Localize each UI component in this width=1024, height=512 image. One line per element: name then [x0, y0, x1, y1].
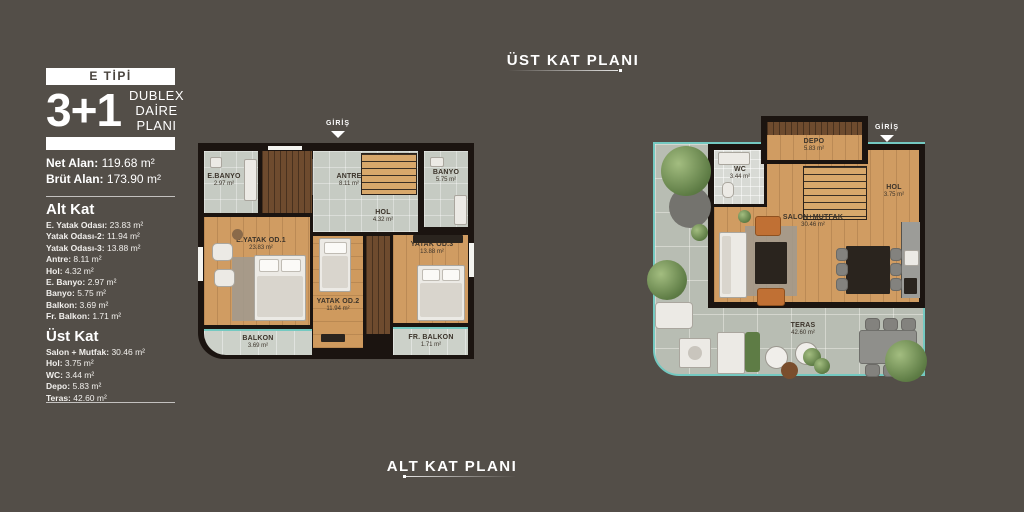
- brut-alan-value: 173.90 m²: [107, 172, 161, 186]
- armchair: [757, 288, 785, 306]
- giris-label-alt: GİRİŞ: [312, 120, 364, 127]
- master-bed: [254, 255, 306, 321]
- armchair: [755, 216, 781, 236]
- title-underline: [406, 476, 516, 477]
- armchair: [212, 243, 233, 261]
- kitchen-counter: [901, 222, 920, 298]
- sofa: [719, 232, 747, 298]
- ust-kat-heading: Üst Kat: [46, 328, 99, 345]
- round-table: [781, 362, 798, 379]
- brochure-page: E TİPİ 3+1 DUBLEX DAİRE PLANI Net Alan: …: [0, 0, 1024, 512]
- room-depo: DEPO 5.83 m²: [783, 138, 845, 153]
- type-badge: E TİPİ: [46, 68, 175, 85]
- depo-block: DEPO 5.83 m²: [761, 116, 868, 164]
- chair: [836, 248, 848, 261]
- chair: [890, 248, 902, 261]
- list-item: Banyo: 5.75 m²: [46, 288, 186, 299]
- chair: [890, 278, 902, 291]
- coffee-table: [755, 242, 787, 284]
- list-item: Fr. Balkon: 1.71 m²: [46, 311, 186, 322]
- bush: [814, 358, 830, 374]
- alt-kat-heading: Alt Kat: [46, 201, 94, 218]
- net-alan: Net Alan: 119.68 m²: [46, 156, 155, 170]
- dresser: [413, 235, 463, 243]
- net-alan-label: Net Alan:: [46, 156, 98, 170]
- bush: [691, 224, 708, 241]
- bathtub: [244, 159, 257, 201]
- floor-plan-ust-kat: WC 3.44 m² HOL 3.75 m² SALON+MUTFAK 30.4…: [653, 116, 925, 374]
- tree: [647, 260, 687, 300]
- giris-label-ust: GİRİŞ: [861, 124, 913, 131]
- divider-bottom: [46, 402, 175, 403]
- unit-count: 3+1: [46, 89, 121, 131]
- room-fr-balkon: FR. BALKON 1.71 m²: [393, 327, 468, 355]
- side-table: [232, 229, 243, 240]
- room-e-banyo: E.BANYO 2.97 m²: [204, 151, 258, 213]
- planter-box: [745, 332, 760, 372]
- armchair: [214, 269, 235, 287]
- list-item: Yatak Odası-3: 13.88 m²: [46, 243, 186, 254]
- list-item: WC: 3.44 m²: [46, 370, 186, 381]
- sink: [430, 157, 444, 167]
- divider-top: [46, 196, 175, 197]
- list-item: Balkon: 3.69 m²: [46, 300, 186, 311]
- window: [198, 247, 203, 281]
- room-banyo: BANYO 5.75 m²: [424, 151, 468, 227]
- list-item: Antre: 8.11 m²: [46, 254, 186, 265]
- dining-table: [846, 246, 890, 294]
- wardrobe-area: [262, 151, 312, 213]
- alt-kat-plani-title: ALT KAT PLANI: [342, 458, 562, 475]
- kitchen-sink: [904, 250, 919, 266]
- ust-kat-list: Salon + Mutfak: 30.46 m² Hol: 3.75 m² WC…: [46, 347, 186, 404]
- unit-header: 3+1 DUBLEX DAİRE PLANI: [46, 88, 186, 132]
- stairs: [361, 153, 417, 195]
- chair: [836, 278, 848, 291]
- white-band: [46, 137, 175, 150]
- toilet: [722, 182, 734, 198]
- list-item: E. Banyo: 2.97 m²: [46, 277, 186, 288]
- chair: [890, 263, 902, 276]
- ust-kat-plani-title: ÜST KAT PLANI: [463, 52, 683, 69]
- entrance-arrow-icon: [331, 131, 345, 138]
- entrance-arrow-icon: [880, 135, 894, 142]
- wardrobe: [767, 122, 862, 135]
- outdoor-table: [679, 338, 711, 368]
- list-item: E. Yatak Odası: 23.83 m²: [46, 220, 186, 231]
- closet: [366, 236, 390, 334]
- brut-alan-label: Brüt Alan:: [46, 172, 104, 186]
- list-item: Hol: 4.32 m²: [46, 266, 186, 277]
- outdoor-chair: [865, 364, 880, 377]
- floor-plan-alt-kat: E.BANYO 2.97 m² ANTRE 8.11 m² HOL 4.32 m…: [198, 143, 474, 359]
- plant: [738, 210, 751, 223]
- room-teras: TERAS 42.60 m²: [773, 322, 833, 337]
- room-yatak-odasi-2: YATAK OD.2 11.94 m²: [313, 236, 363, 348]
- bathtub: [454, 195, 467, 225]
- title-dot: [403, 475, 406, 478]
- brut-alan: Brüt Alan: 173.90 m²: [46, 172, 161, 186]
- window: [469, 243, 474, 277]
- window: [268, 146, 302, 150]
- list-item: Depo: 5.83 m²: [46, 381, 186, 392]
- tree: [661, 146, 711, 196]
- alt-kat-list: E. Yatak Odası: 23.83 m² Yatak Odası-2: …: [46, 220, 186, 323]
- net-alan-value: 119.68 m²: [102, 156, 155, 170]
- lounge-chair: [717, 332, 745, 374]
- sink: [210, 157, 222, 168]
- list-item: Hol: 3.75 m²: [46, 358, 186, 369]
- tree: [885, 340, 927, 382]
- list-item: Yatak Odası-2: 11.94 m²: [46, 231, 186, 242]
- room-e-yatak-odasi: E.YATAK OD.1 23.83 m²: [204, 217, 310, 325]
- outdoor-sofa: [655, 302, 693, 329]
- room-wc: WC 3.44 m²: [714, 150, 764, 204]
- cabinet: [321, 334, 345, 342]
- stove: [904, 278, 917, 294]
- room-yatak-odasi-3: YATAK OD.3 13.88 m²: [393, 235, 468, 323]
- chair: [836, 263, 848, 276]
- sink: [718, 152, 750, 165]
- room-antre-hol: ANTRE 8.11 m² HOL 4.32 m²: [313, 151, 418, 232]
- list-item: Salon + Mutfak: 30.46 m²: [46, 347, 186, 358]
- title-dot: [619, 69, 622, 72]
- stairs: [803, 166, 867, 220]
- interior: WC 3.44 m² HOL 3.75 m² SALON+MUTFAK 30.4…: [708, 144, 925, 308]
- unit-sub-daire: DAİRE PLANI: [127, 103, 186, 133]
- title-underline: [508, 70, 618, 71]
- bed: [319, 238, 351, 292]
- unit-sub-dublex: DUBLEX: [127, 88, 186, 103]
- room-balkon: BALKON 3.69 m²: [204, 329, 312, 355]
- bed: [417, 265, 465, 321]
